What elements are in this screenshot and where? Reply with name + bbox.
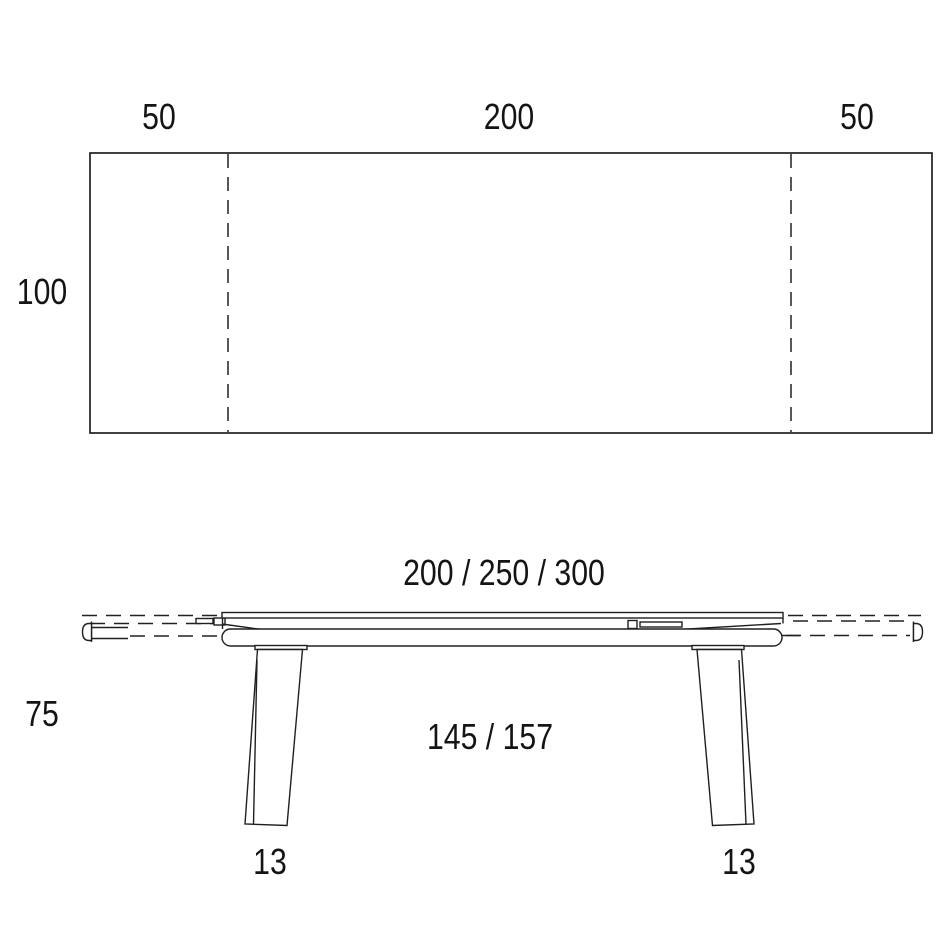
dim-left-leg-width: 13 xyxy=(253,844,287,880)
dim-side-leg-clearance: 145 / 157 xyxy=(427,719,553,755)
dim-right-leg-width: 13 xyxy=(722,844,756,880)
dim-top-right-extension: 50 xyxy=(840,99,874,135)
right-leg xyxy=(692,646,754,826)
dim-side-height: 75 xyxy=(25,696,59,732)
left-rail-end-cap xyxy=(83,624,92,641)
left-leg xyxy=(245,646,307,826)
dim-side-length-options: 200 / 250 / 300 xyxy=(403,555,605,591)
slide-mechanism-details xyxy=(196,618,781,630)
tabletop-outline xyxy=(90,153,932,433)
tabletop-slab xyxy=(222,613,783,619)
top-view xyxy=(90,153,932,433)
table-dimension-drawing: 50 200 50 100 200 / 250 / 300 75 145 / 1… xyxy=(0,0,950,950)
dim-top-depth: 100 xyxy=(17,274,67,310)
apron-rail xyxy=(222,629,782,646)
right-extension-leaf-dashed xyxy=(782,616,923,643)
drawing-canvas xyxy=(0,0,950,950)
dim-top-left-extension: 50 xyxy=(142,99,176,135)
right-rail-end-cap xyxy=(914,624,923,641)
dim-top-center-length: 200 xyxy=(484,99,534,135)
